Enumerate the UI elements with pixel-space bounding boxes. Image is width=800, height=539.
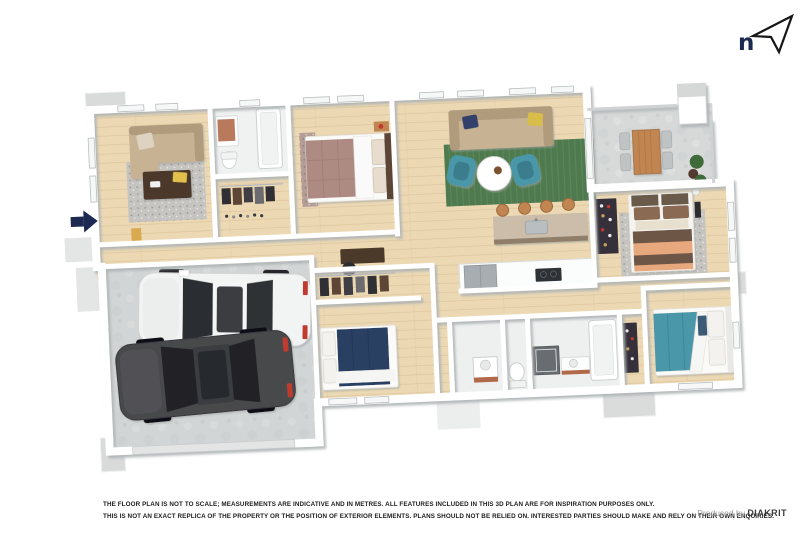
window (457, 90, 483, 97)
floorplan-image (0, 0, 800, 539)
toilet-tank (221, 152, 237, 160)
pillow (322, 332, 336, 357)
floor-lamp (692, 188, 699, 195)
mirror (179, 270, 189, 276)
bed-navy (320, 325, 399, 390)
cooktop (535, 268, 562, 282)
hood (142, 278, 179, 340)
vanity-sink (569, 359, 577, 367)
pillow-navy (462, 114, 479, 130)
window (551, 86, 573, 93)
window (509, 88, 535, 95)
pillow (371, 139, 385, 165)
bed-teal (653, 306, 734, 375)
window (240, 100, 260, 107)
pillow (323, 359, 337, 384)
window (733, 322, 740, 348)
taillight (302, 325, 307, 339)
bedhead-mat (661, 193, 688, 205)
coffee-table (143, 170, 192, 200)
bed-master (628, 192, 695, 273)
duvet-fold (353, 136, 374, 199)
taillight (303, 281, 308, 295)
window (678, 382, 712, 389)
sofa-pillow (136, 132, 155, 150)
car-dark (114, 325, 297, 425)
north-indicator: n (733, 8, 797, 64)
north-arrow-icon (753, 16, 792, 52)
bedhead-mat (631, 194, 658, 206)
trough-sink (480, 360, 490, 370)
toilet (509, 362, 525, 381)
table-decor-books (150, 181, 160, 187)
garage (111, 261, 318, 426)
floorplan-page: n THE FLOOR PLAN IS NOT TO SCALE; MEASUR… (0, 0, 800, 539)
toilet-tank (509, 380, 526, 388)
family-sofa (448, 106, 554, 150)
alfresco-pillar-cap (677, 83, 706, 97)
pillow (373, 167, 387, 193)
window (329, 398, 357, 405)
window (419, 92, 443, 99)
roof-glass (197, 349, 229, 399)
credit-prefix: Produced by (697, 508, 745, 518)
disclaimer-line-2: THIS IS NOT AN EXACT REPLICA OF THE PROP… (103, 513, 774, 520)
windshield (182, 278, 213, 340)
tv-unit (694, 202, 701, 218)
window (729, 238, 736, 262)
table-decor-yellow (173, 172, 188, 183)
window (728, 202, 735, 230)
pillow (708, 339, 725, 366)
bathtub-inner (260, 112, 278, 165)
desk (340, 247, 385, 264)
island-sink (525, 220, 548, 234)
bathtub-inner (593, 325, 614, 376)
hood (119, 348, 163, 415)
north-letter: n (738, 30, 754, 56)
vanity-towels (217, 119, 235, 142)
window (365, 396, 389, 403)
pillow-yellow (527, 112, 543, 126)
sunroof (217, 286, 243, 332)
entry-porch-wall (63, 236, 94, 263)
windshield (161, 343, 199, 412)
window (88, 138, 95, 168)
disclaimer-line-1: THE FLOOR PLAN IS NOT TO SCALE; MEASUREM… (103, 501, 655, 508)
pillow-pattern (697, 315, 707, 335)
window (118, 105, 144, 112)
window (90, 176, 97, 202)
laundry (473, 357, 498, 383)
window (156, 103, 178, 110)
trough-cabinet (474, 377, 498, 383)
kitchen-island (493, 213, 588, 245)
outdoor-table (632, 129, 661, 174)
bedroom-4 (653, 306, 734, 375)
floorplan-body (57, 65, 753, 473)
window (338, 95, 364, 102)
credit-brand: DIAKRIT (747, 508, 787, 518)
window (304, 97, 330, 104)
pillow-brown (663, 205, 690, 219)
pillow-brown (634, 206, 661, 220)
bed-mauve (305, 133, 394, 203)
pillow (707, 311, 724, 338)
producer-credit: Produced by DIAKRIT (697, 508, 787, 518)
